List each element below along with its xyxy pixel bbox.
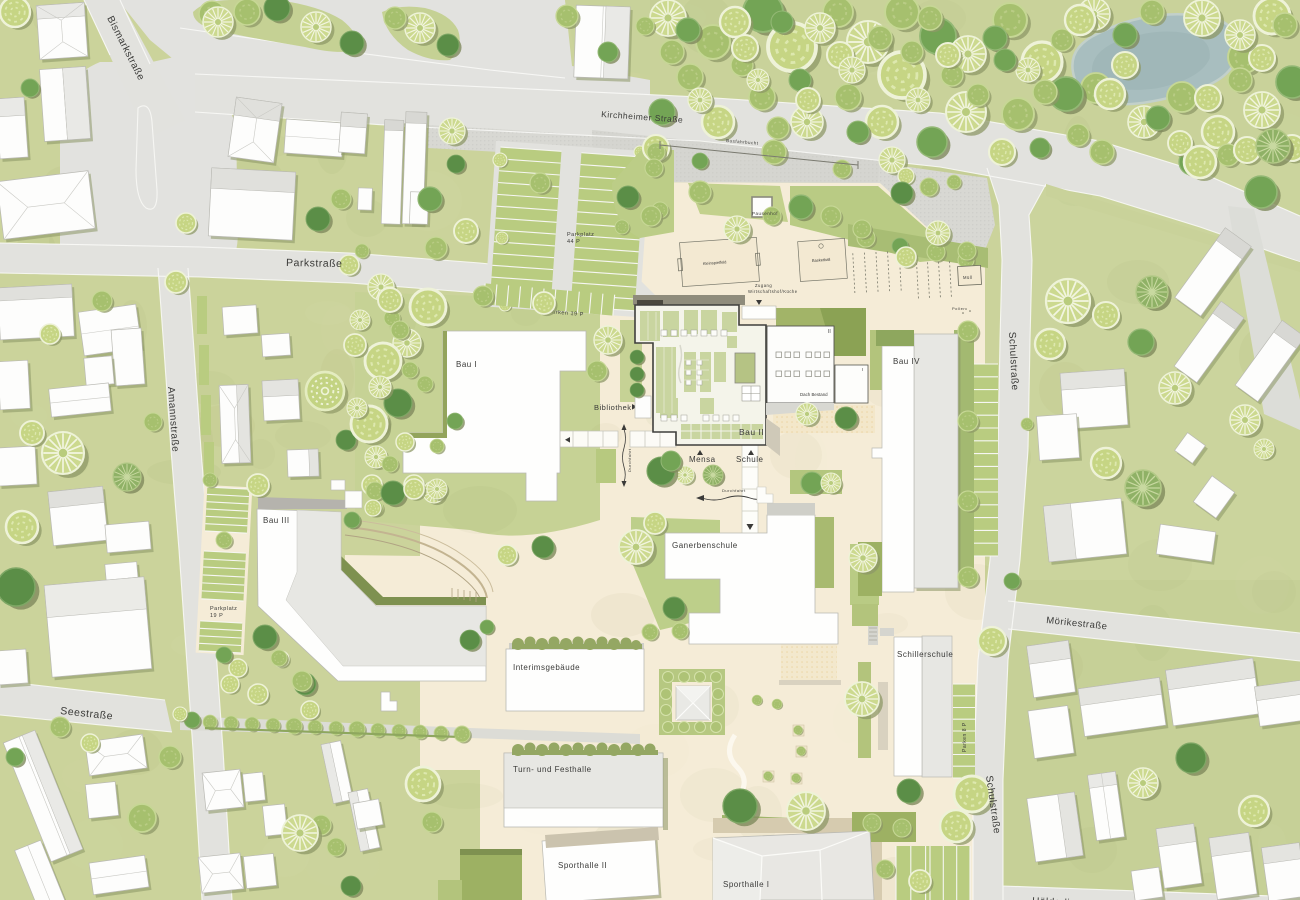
svg-text:44 P: 44 P: [567, 239, 580, 245]
svg-text:Dach Bestand: Dach Bestand: [800, 392, 828, 397]
svg-text:Parkplatz: Parkplatz: [210, 606, 237, 612]
svg-text:Müll: Müll: [963, 275, 973, 280]
svg-text:Durchfahrt: Durchfahrt: [627, 448, 632, 472]
svg-text:Interimsgebäude: Interimsgebäude: [513, 663, 580, 672]
svg-text:Poller: Poller: [952, 306, 965, 311]
svg-text:Bibliothek: Bibliothek: [594, 403, 632, 412]
svg-text:Ganerbenschule: Ganerbenschule: [672, 541, 738, 550]
svg-text:Turn- und Festhalle: Turn- und Festhalle: [513, 765, 592, 774]
svg-text:Schillerschule: Schillerschule: [897, 650, 953, 659]
svg-text:Parkstraße: Parkstraße: [286, 257, 343, 270]
svg-text:Bau III: Bau III: [263, 516, 290, 525]
svg-text:Wirtschaftshof/Küche: Wirtschaftshof/Küche: [748, 289, 798, 294]
svg-text:Zugang: Zugang: [755, 283, 772, 288]
svg-text:Pausenhof: Pausenhof: [752, 211, 778, 216]
svg-text:II: II: [828, 329, 831, 335]
svg-text:Schule: Schule: [736, 455, 764, 464]
svg-text:Sporthalle II: Sporthalle II: [558, 861, 607, 870]
svg-text:Bau IV: Bau IV: [893, 357, 920, 366]
svg-text:Parken 8 P: Parken 8 P: [962, 722, 968, 752]
svg-text:Durchfahrt: Durchfahrt: [722, 488, 746, 493]
svg-text:19 P: 19 P: [210, 613, 223, 619]
svg-text:Bau I: Bau I: [456, 360, 477, 369]
svg-text:Bau II: Bau II: [739, 427, 764, 437]
svg-text:I: I: [862, 367, 863, 372]
svg-text:Sporthalle I: Sporthalle I: [723, 880, 769, 889]
svg-text:Mensa: Mensa: [689, 455, 716, 464]
svg-text:Parkplatz: Parkplatz: [567, 232, 594, 238]
